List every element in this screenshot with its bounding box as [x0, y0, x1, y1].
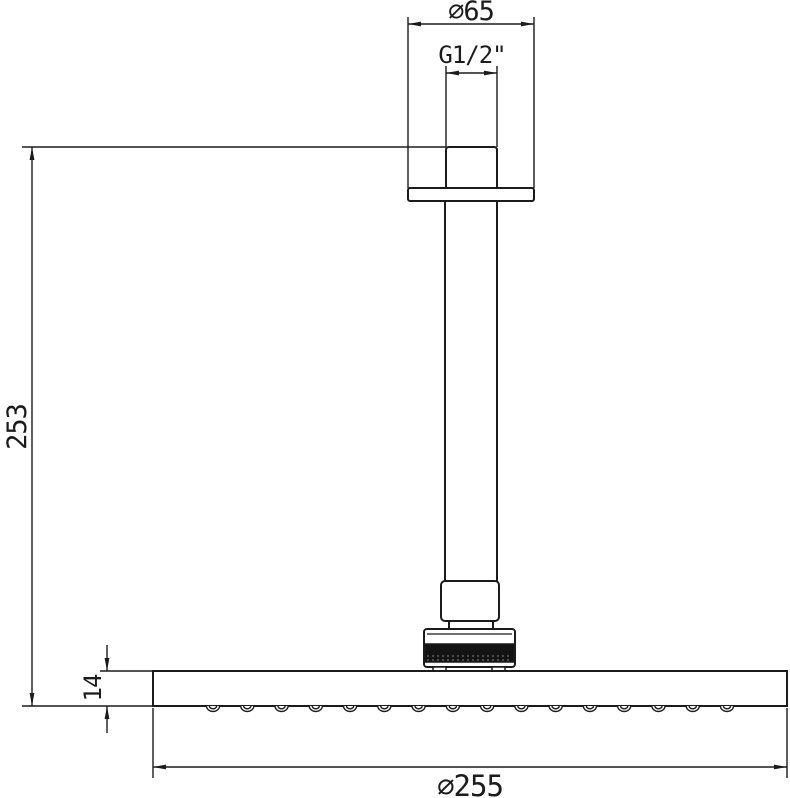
dimension-label: G1/2": [438, 41, 505, 69]
nozzle: [378, 706, 391, 712]
nozzle: [652, 706, 665, 712]
dimension-arm-length: 253: [2, 147, 446, 706]
arm-collar: [441, 581, 499, 621]
nozzle: [583, 706, 596, 712]
arrowhead-up: [30, 147, 35, 160]
arrowhead-up: [105, 706, 110, 719]
nozzle: [686, 706, 699, 712]
thread-connector: [446, 147, 497, 192]
arrowhead-down: [30, 693, 35, 706]
knurled-ring: [425, 644, 514, 662]
nozzle: [241, 706, 254, 712]
nozzle: [344, 706, 357, 712]
connector-neck: [449, 621, 493, 629]
shower-arm-pipe: [445, 198, 497, 582]
nozzle: [481, 706, 494, 712]
arrowhead-right: [484, 71, 497, 76]
technical-drawing-canvas: ∅65 G1/2" 253 14: [0, 0, 790, 798]
arrowhead-left: [446, 71, 459, 76]
nozzle: [721, 706, 734, 712]
nozzle: [309, 706, 322, 712]
nozzle: [618, 706, 631, 712]
dimension-label: 253: [2, 404, 33, 450]
dimension-label: 14: [79, 674, 107, 701]
nozzle: [446, 706, 459, 712]
arrowhead-down: [105, 658, 110, 671]
dimension-thread-size: G1/2": [438, 41, 505, 147]
arrowhead-left: [408, 22, 421, 27]
nozzle: [275, 706, 288, 712]
dimension-label: ∅65: [448, 0, 494, 27]
nozzle: [207, 706, 220, 712]
arrowhead-right: [774, 765, 787, 770]
nozzle: [515, 706, 528, 712]
arrowhead-left: [153, 765, 166, 770]
shower-assembly: [153, 147, 787, 712]
nozzle: [549, 706, 562, 712]
dimension-head-diameter: ∅255: [153, 708, 787, 798]
nozzle: [412, 706, 425, 712]
shower-head: [153, 671, 787, 706]
dimension-label: ∅255: [437, 769, 503, 798]
dimension-head-thickness: 14: [79, 645, 153, 733]
ceiling-plate: [408, 188, 534, 201]
arrowhead-right: [521, 22, 534, 27]
shower-arm-drawing: ∅65 G1/2" 253 14: [0, 0, 790, 798]
